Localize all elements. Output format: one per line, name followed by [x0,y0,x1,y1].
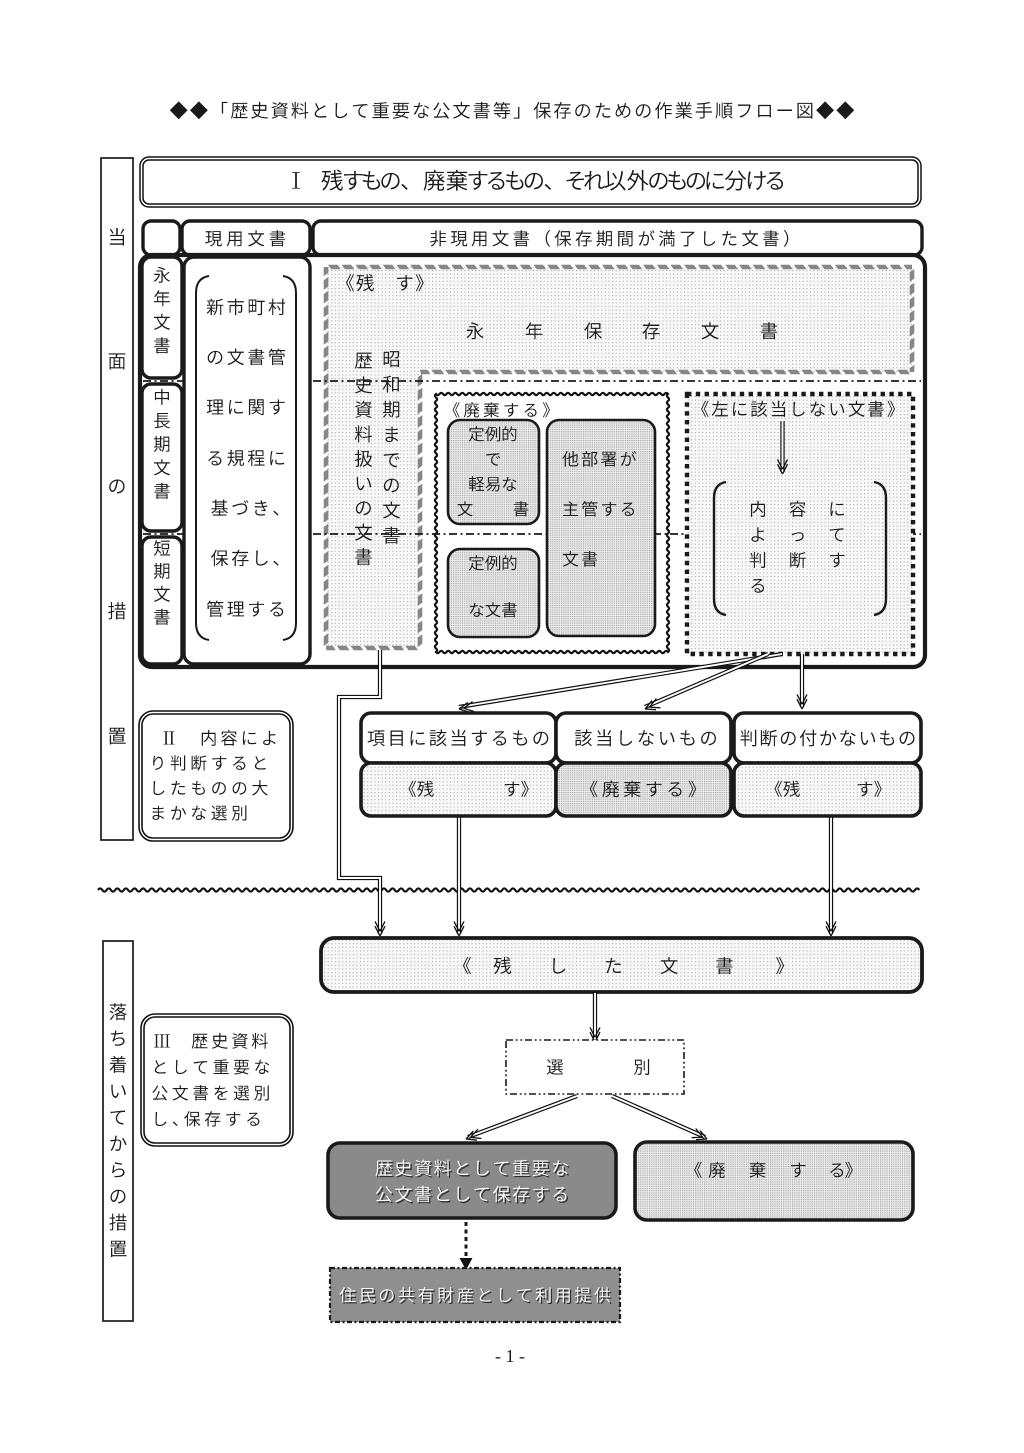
svg-text:- 1 -: - 1 - [495,1346,525,1366]
